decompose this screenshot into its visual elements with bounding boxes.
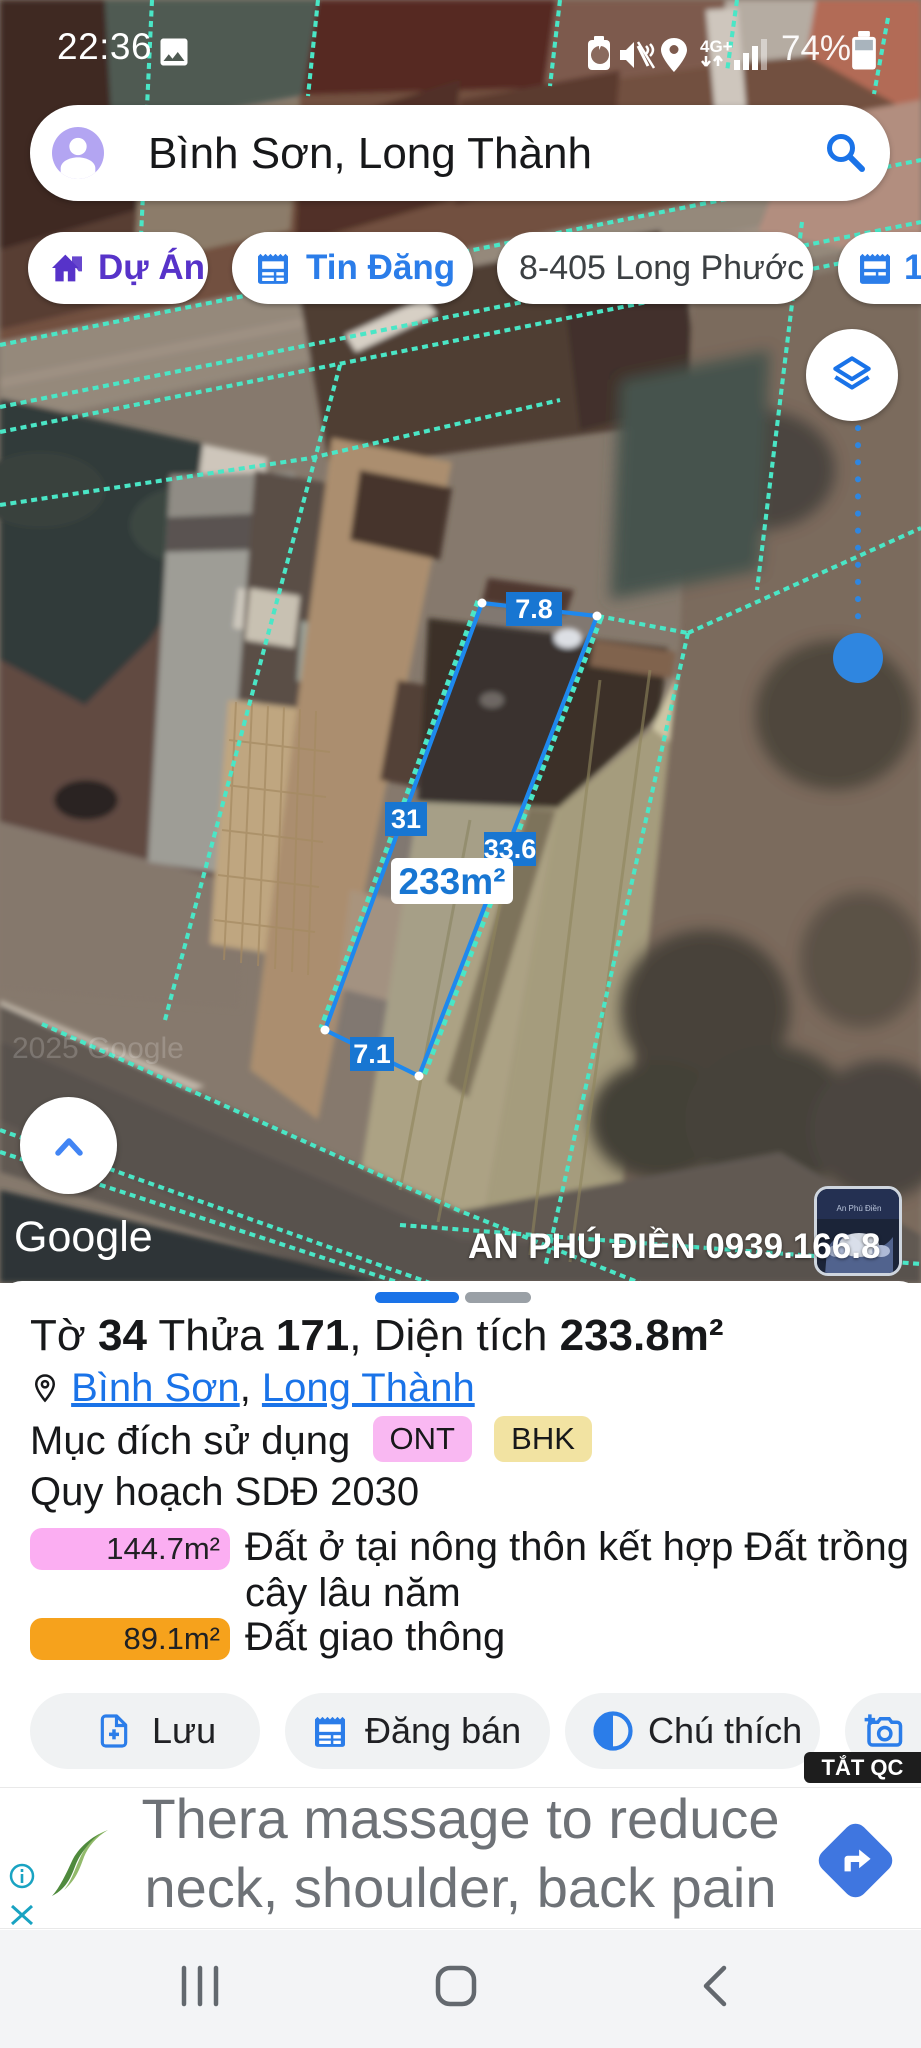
svg-text:An Phú Điền: An Phú Điền <box>837 1204 882 1213</box>
svg-text:31: 31 <box>391 804 421 834</box>
svg-text:4G+: 4G+ <box>700 37 733 56</box>
svg-text:7.1: 7.1 <box>353 1039 391 1069</box>
svg-text:233m²: 233m² <box>399 861 506 902</box>
svg-text:2025 Google: 2025 Google <box>12 1032 184 1065</box>
svg-text:7.8: 7.8 <box>515 594 553 624</box>
